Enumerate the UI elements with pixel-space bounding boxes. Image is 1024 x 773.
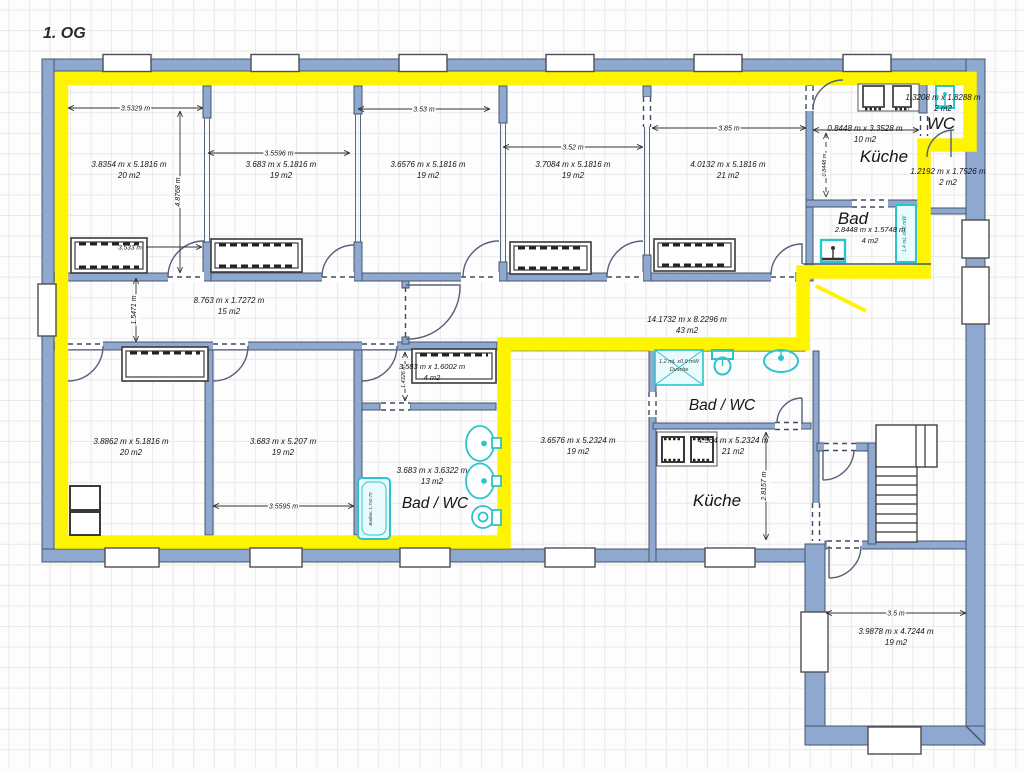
svg-text:3.6576 m x 5.2324 m: 3.6576 m x 5.2324 m [540, 436, 615, 445]
svg-text:19 m2: 19 m2 [417, 171, 440, 180]
svg-text:19 m2: 19 m2 [567, 447, 590, 456]
svg-text:2 m2: 2 m2 [933, 104, 952, 113]
svg-text:3.8862 m x 5.1816 m: 3.8862 m x 5.1816 m [93, 437, 168, 446]
svg-text:3.683 m x 5.1816 m: 3.683 m x 5.1816 m [246, 160, 317, 169]
svg-text:WC: WC [927, 114, 956, 133]
svg-text:3.5 m: 3.5 m [887, 610, 905, 617]
svg-text:3.683 m x 5.207 m: 3.683 m x 5.207 m [250, 437, 317, 446]
svg-text:3.6576 m x 5.1816 m: 3.6576 m x 5.1816 m [390, 160, 465, 169]
svg-text:Küche: Küche [860, 147, 908, 166]
svg-text:13 m2: 13 m2 [421, 477, 444, 486]
svg-text:Bad / WC: Bad / WC [402, 495, 469, 512]
svg-text:3.5329 m: 3.5329 m [121, 105, 150, 112]
svg-text:8.763 m x 1.7272 m: 8.763 m x 1.7272 m [194, 296, 265, 305]
svg-text:0.8448 m x 3.3528 m: 0.8448 m x 3.3528 m [827, 124, 902, 133]
svg-text:4.0132 m x 5.1816 m: 4.0132 m x 5.1816 m [690, 160, 765, 169]
svg-text:0.8448 m: 0.8448 m [822, 153, 828, 176]
svg-text:3.5595 m: 3.5595 m [269, 503, 298, 510]
svg-text:21 m2: 21 m2 [716, 171, 740, 180]
svg-text:1.3208 m x 1.8288 m: 1.3208 m x 1.8288 m [905, 93, 980, 102]
svg-text:15 m2: 15 m2 [218, 307, 241, 316]
svg-text:Bad / WC: Bad / WC [689, 397, 756, 414]
svg-text:Bad: Bad [838, 209, 869, 228]
svg-text:21 m2: 21 m2 [721, 447, 745, 456]
svg-text:3.52 m: 3.52 m [562, 144, 584, 151]
svg-text:1. OG: 1. OG [43, 25, 86, 42]
svg-text:19 m2: 19 m2 [272, 448, 295, 457]
svg-text:43 m2: 43 m2 [676, 326, 699, 335]
svg-text:3.85 m: 3.85 m [718, 125, 740, 132]
svg-text:20 m2: 20 m2 [117, 171, 141, 180]
svg-text:3.683 m x 3.6322 m: 3.683 m x 3.6322 m [397, 466, 468, 475]
svg-text:3.5596 m: 3.5596 m [264, 150, 293, 157]
svg-text:10 m2: 10 m2 [854, 135, 877, 144]
svg-text:3.9878 m x 4.7244 m: 3.9878 m x 4.7244 m [858, 627, 933, 636]
svg-text:14.1732 m x 8.2296 m: 14.1732 m x 8.2296 m [647, 315, 727, 324]
svg-text:19 m2: 19 m2 [885, 638, 908, 647]
svg-text:3.7084 m x 5.1816 m: 3.7084 m x 5.1816 m [535, 160, 610, 169]
svg-text:19 m2: 19 m2 [562, 171, 585, 180]
svg-text:4.8768 m: 4.8768 m [175, 177, 182, 206]
svg-text:4 m2: 4 m2 [424, 373, 442, 382]
svg-text:3.53 m: 3.53 m [413, 106, 435, 113]
svg-text:20 m2: 20 m2 [119, 448, 143, 457]
svg-text:Dusche: Dusche [670, 367, 689, 373]
svg-text:2.8157 m: 2.8157 m [761, 471, 768, 501]
svg-text:3.8354 m x 5.1816 m: 3.8354 m x 5.1816 m [91, 160, 166, 169]
svg-text:3.533 m: 3.533 m [118, 245, 142, 252]
svg-text:1.5471 m: 1.5471 m [131, 295, 138, 324]
svg-text:Badew. 1.7x0.75: Badew. 1.7x0.75 [368, 492, 373, 526]
svg-text:1.2 mL x0.9 mW: 1.2 mL x0.9 mW [659, 359, 700, 365]
svg-text:2 m2: 2 m2 [938, 178, 957, 187]
svg-text:1.2192 m x 1.7526 m: 1.2192 m x 1.7526 m [910, 167, 985, 176]
svg-text:4 m2: 4 m2 [862, 236, 880, 245]
svg-text:3.583 m x 1.6002 m: 3.583 m x 1.6002 m [399, 362, 465, 371]
svg-text:19 m2: 19 m2 [270, 171, 293, 180]
svg-text:Küche: Küche [693, 491, 741, 510]
svg-text:4.564 m x 5.2324 m: 4.564 m x 5.2324 m [698, 436, 769, 445]
